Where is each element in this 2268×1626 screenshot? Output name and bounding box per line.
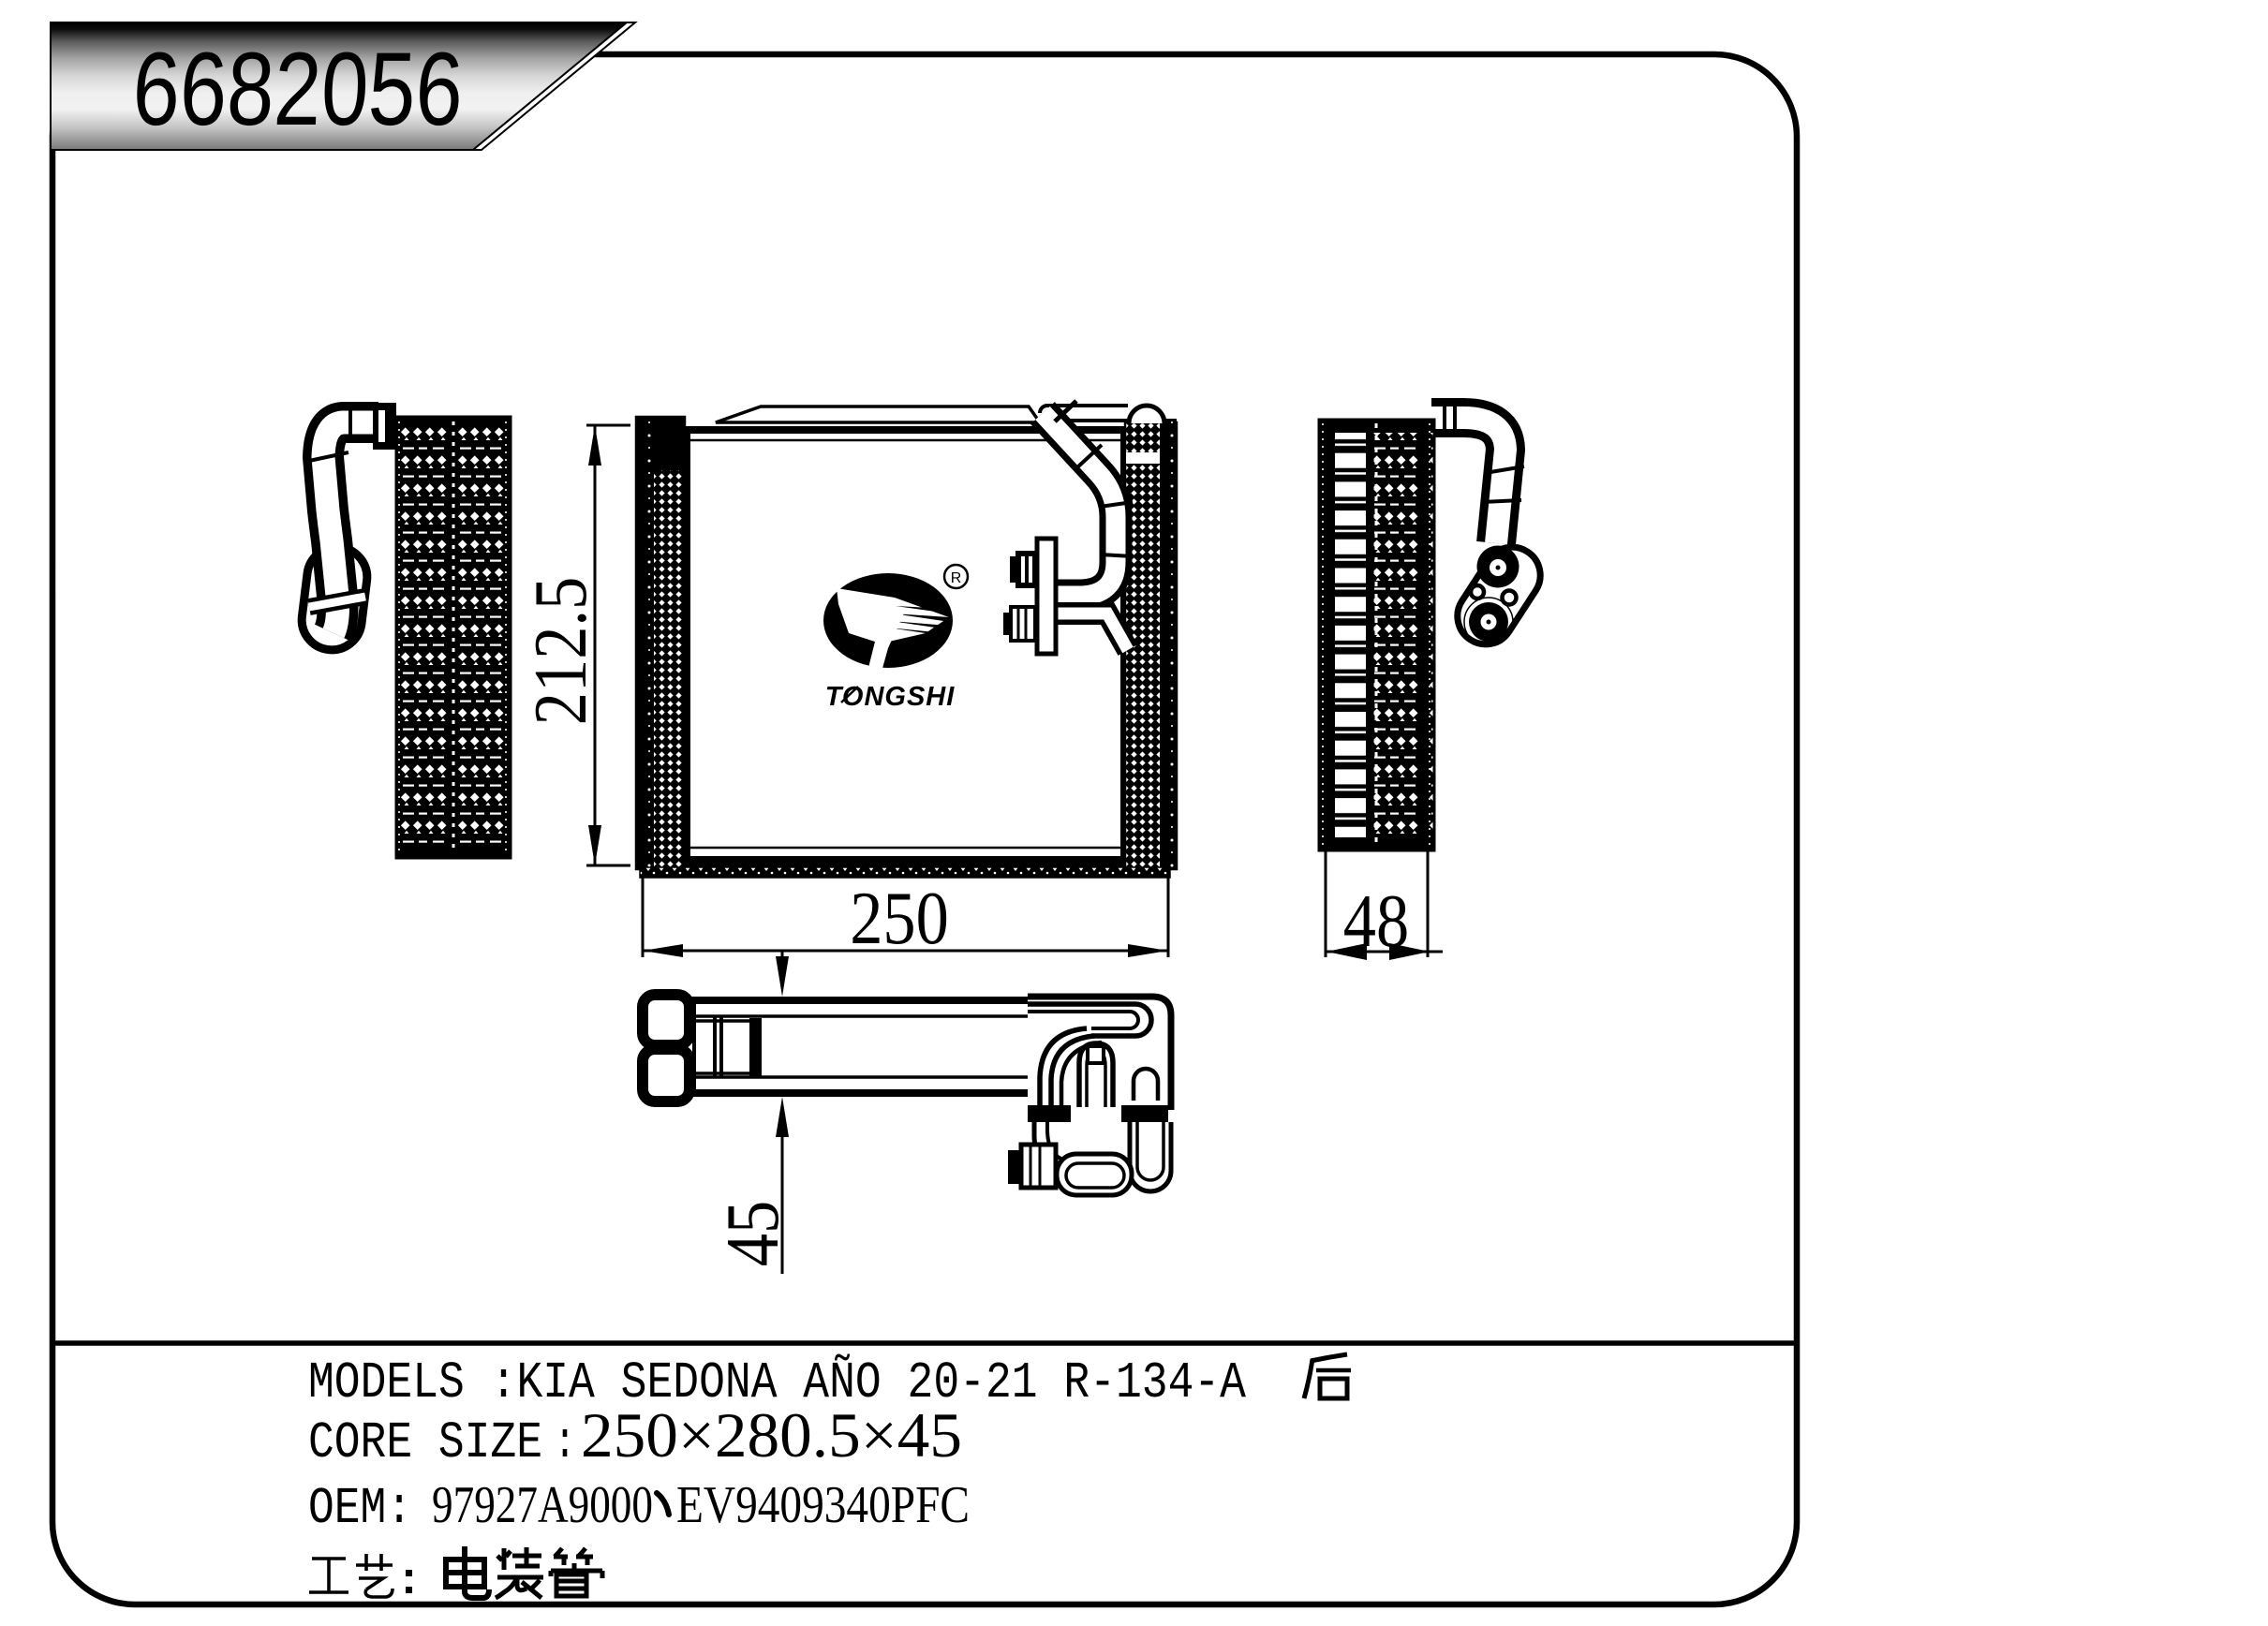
svg-text:45: 45 [712, 1201, 794, 1266]
svg-text:OEM:: OEM: [308, 1479, 412, 1538]
svg-text:250: 250 [850, 878, 949, 960]
svg-text:212.5: 212.5 [520, 577, 602, 725]
svg-text:TONGSHI: TONGSHI [825, 682, 956, 712]
svg-text::: : [554, 1413, 576, 1472]
svg-text:CORE SIZE: CORE SIZE [308, 1413, 542, 1472]
svg-text:48: 48 [1343, 880, 1409, 963]
svg-text:EV9409340PFC: EV9409340PFC [676, 1476, 970, 1534]
svg-text:R: R [951, 570, 962, 586]
svg-text:250×280.5×45: 250×280.5×45 [581, 1399, 962, 1471]
svg-text:97927A9000: 97927A9000 [432, 1476, 653, 1534]
svg-text:6682056: 6682056 [130, 31, 465, 147]
